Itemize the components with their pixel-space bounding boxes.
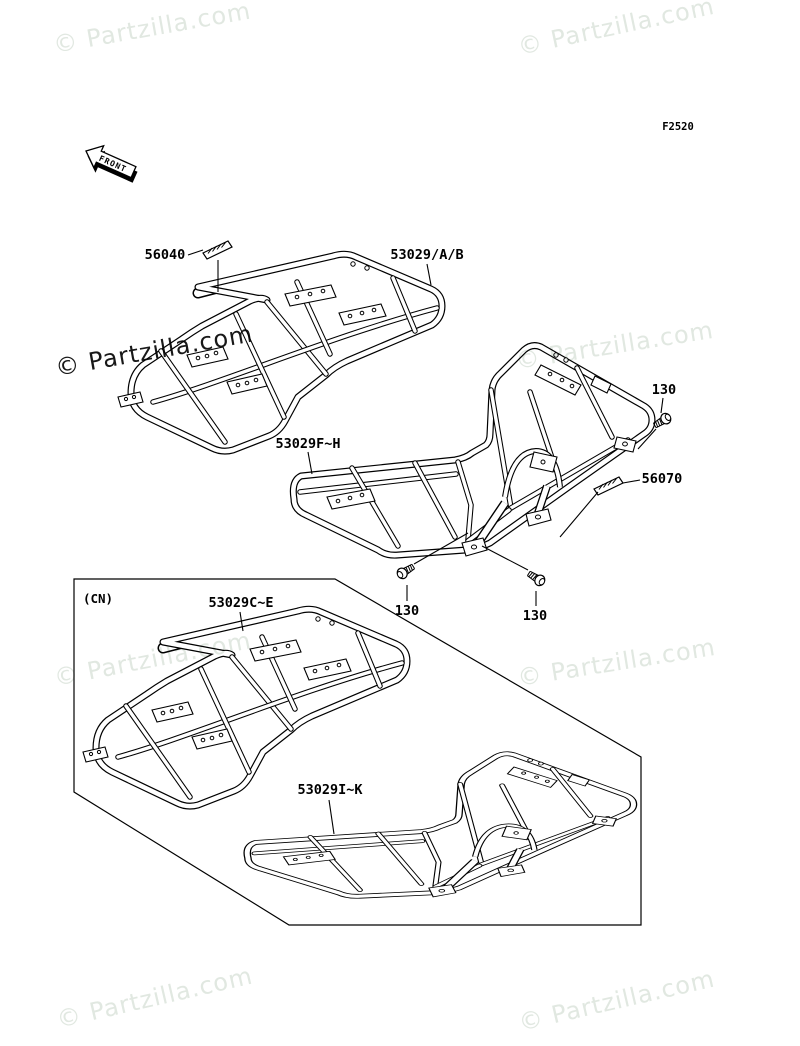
part-label-56040[interactable]: 56040 — [145, 247, 186, 263]
part-label-53029ik[interactable]: 53029I~K — [297, 782, 363, 798]
watermark: © Partzilla.com — [51, 0, 253, 59]
part-label-130-left[interactable]: 130 — [395, 603, 419, 619]
part-label-53029ce[interactable]: 53029C~E — [208, 595, 273, 611]
fiche-code: F2520 — [662, 121, 694, 133]
part-label-130-top[interactable]: 130 — [652, 382, 676, 398]
part-label-130-right[interactable]: 130 — [523, 608, 547, 624]
carrier-rack-53029ce-drawing — [83, 609, 407, 806]
reflector-strip-56040-icon — [203, 241, 232, 259]
watermark: © Partzilla.com — [516, 965, 717, 1037]
bolt-130-left-icon — [395, 562, 416, 581]
carrier-rack-53029ik-drawing — [247, 754, 633, 897]
front-arrow: FRONT — [79, 140, 141, 188]
part-label-56070[interactable]: 56070 — [642, 471, 683, 487]
part-label-53029ab[interactable]: 53029/A/B — [390, 247, 463, 263]
watermark: © Partzilla.com — [54, 962, 255, 1034]
parts-diagram-page: 56040 53029/A/B 53029F~H 130 56070 53029… — [0, 0, 800, 1046]
carrier-rack-53029fh-drawing — [293, 346, 652, 556]
bolt-130-right-icon — [526, 569, 547, 588]
parts-diagram-canvas: 56040 53029/A/B 53029F~H 130 56070 53029… — [0, 0, 800, 1046]
carrier-rack-53029ab-drawing — [118, 254, 442, 451]
watermark: © Partzilla.com — [516, 633, 718, 692]
part-label-53029fh[interactable]: 53029F~H — [275, 436, 340, 452]
watermark: © Partzilla.com — [515, 0, 717, 61]
cn-variant-label: (CN) — [83, 591, 113, 606]
